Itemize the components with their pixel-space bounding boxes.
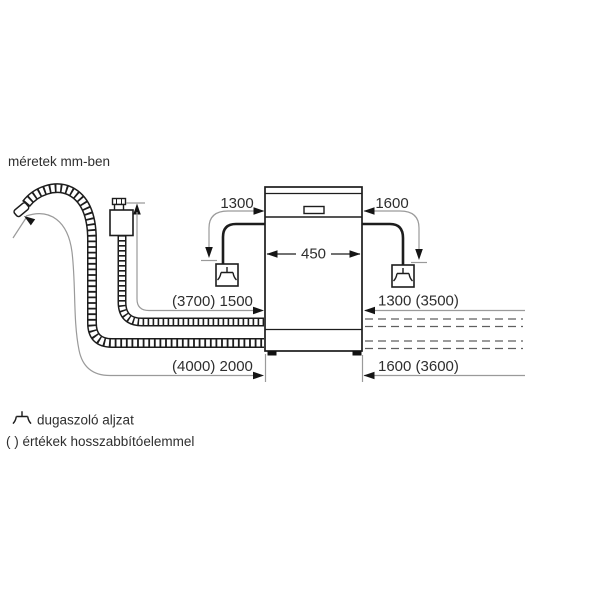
installation-diagram: méretek mm-ben (0, 0, 600, 600)
power-socket-icon-right (392, 265, 414, 287)
dimension-cord-right: 1600 (364, 195, 428, 263)
legend: dugaszoló aljzat ( ) értékek hosszabbító… (6, 411, 194, 449)
dimension-supply-hose-right: 1300 (3500) (364, 293, 525, 315)
dim-label-1600-3600: 1600 (3600) (378, 358, 459, 375)
control-panel-handle (304, 207, 324, 214)
dim-label-1300: 1300 (220, 195, 253, 212)
aquastop-valve (110, 199, 133, 236)
hose-continuation-dashed (365, 319, 523, 349)
dim-label-1600: 1600 (375, 195, 408, 212)
dim-label-450: 450 (301, 246, 326, 263)
legend-brackets-label: ( ) értékek hosszabbítóelemmel (6, 434, 194, 449)
foot-left (268, 351, 277, 356)
foot-right (353, 351, 362, 356)
dim-label-4000-2000: (4000) 2000 (172, 358, 253, 375)
legend-socket-label: dugaszoló aljzat (37, 413, 134, 428)
dimension-drain-hose-right: 1600 (3600) (363, 355, 526, 382)
dishwasher-outline (265, 187, 362, 356)
power-cable-right (362, 224, 403, 266)
dimension-cord-left: 1300 (201, 195, 265, 261)
power-socket-icon-left (216, 264, 238, 286)
dim-label-3700-1500: (3700) 1500 (172, 293, 253, 310)
power-cable-left (223, 224, 265, 264)
plug-socket-icon (13, 411, 31, 423)
page-title: méretek mm-ben (8, 154, 110, 169)
dim-label-1300-3500: 1300 (3500) (378, 293, 459, 310)
dimension-supply-hose-left: (3700) 1500 (126, 203, 264, 314)
